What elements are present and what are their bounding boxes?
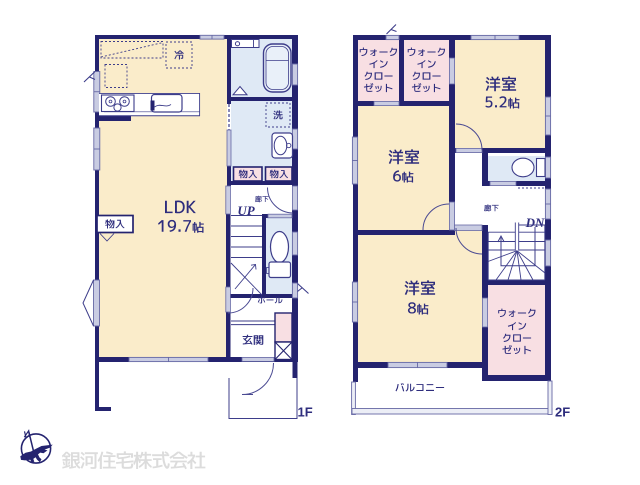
svg-text:2F: 2F	[555, 405, 570, 420]
svg-text:1F: 1F	[298, 405, 313, 420]
